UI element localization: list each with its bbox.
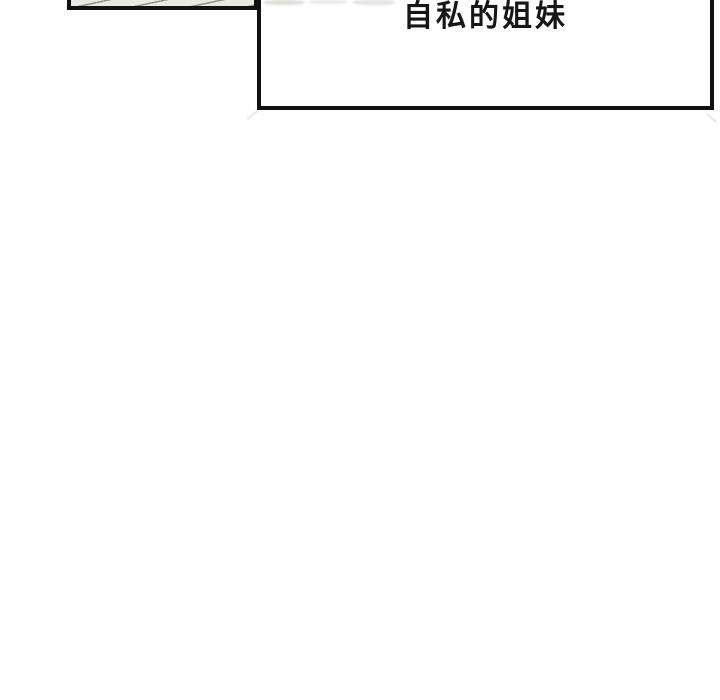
print-smudge [263, 0, 305, 5]
print-smudge [308, 0, 348, 4]
jpeg-artifact-bottom-right [706, 113, 717, 123]
comic-panel-fragment [67, 0, 258, 10]
comic-page: 自私的姐妹 [0, 0, 720, 700]
print-smudge [352, 0, 396, 5]
caption-box: 自私的姐妹 [257, 0, 714, 110]
caption-text: 自私的姐妹 [261, 1, 710, 33]
jpeg-artifact-bottom-left [247, 110, 258, 120]
